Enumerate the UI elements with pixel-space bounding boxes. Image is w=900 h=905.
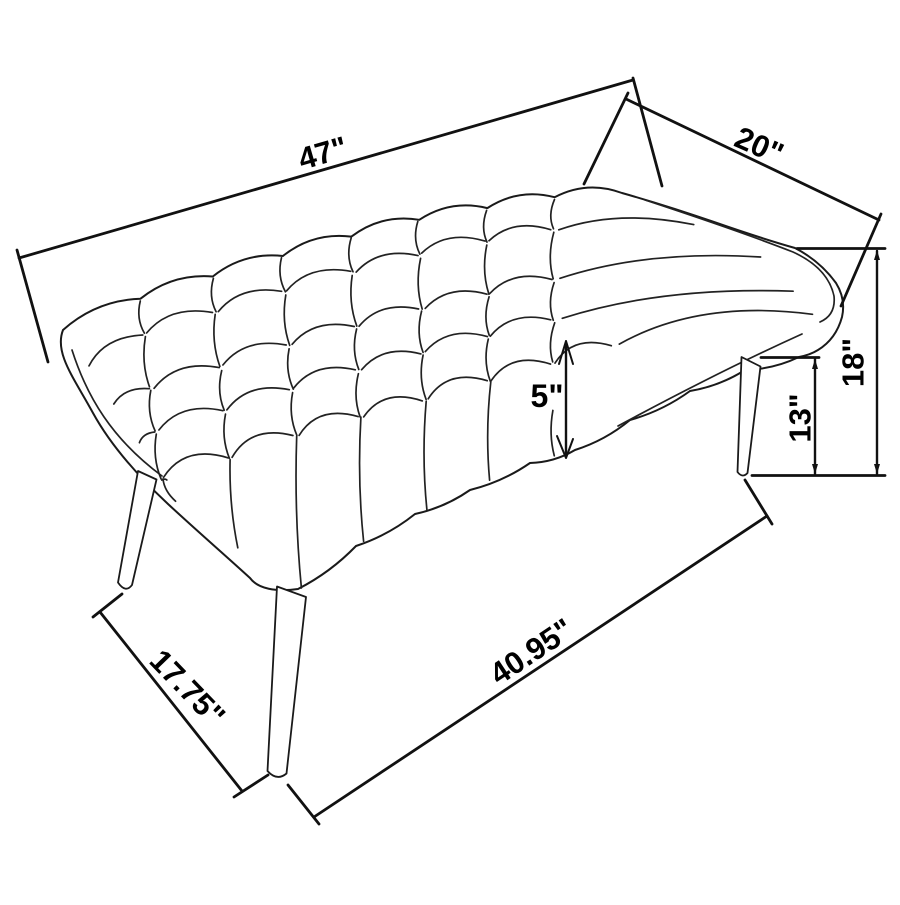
svg-text:18": 18" <box>836 338 871 387</box>
svg-text:13": 13" <box>783 393 818 442</box>
svg-text:5": 5" <box>531 378 564 414</box>
